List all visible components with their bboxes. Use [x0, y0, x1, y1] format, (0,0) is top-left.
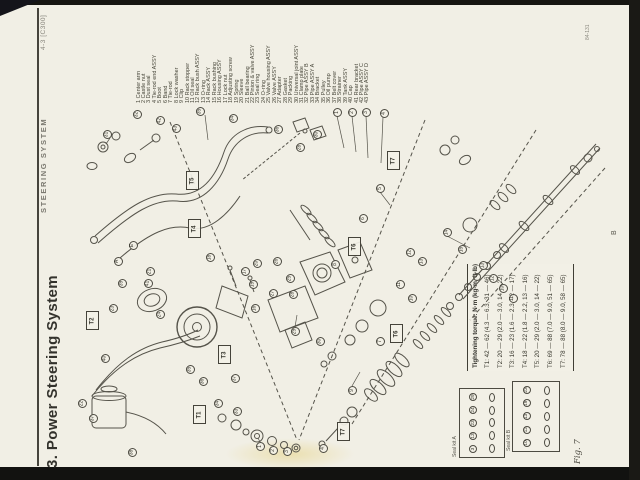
number-callout: 25 — [286, 274, 295, 283]
number-callout: 9 — [348, 386, 357, 395]
number-callout: 13 — [479, 261, 488, 270]
number-callout: 34 — [214, 399, 223, 408]
number-callout: 8 — [331, 260, 340, 269]
number-callout: 19 — [249, 280, 258, 289]
number-callout: 18 — [206, 253, 215, 262]
seal-kit-item-number: 10 — [523, 439, 531, 447]
number-callout: 14 — [443, 228, 452, 237]
seal-icon — [544, 425, 550, 434]
number-callout: 13 — [418, 257, 427, 266]
number-callout: 36 — [199, 377, 208, 386]
seal-icon — [489, 419, 495, 428]
number-callout: 37 — [231, 374, 240, 383]
seal-kit-row — [544, 386, 550, 447]
number-callout: 36 — [274, 125, 283, 134]
seal-kit-item-number: 23 — [469, 419, 477, 427]
number-callout: 27 — [269, 289, 278, 298]
number-callout: 34 — [229, 114, 238, 123]
number-callout: 41 — [144, 279, 153, 288]
number-callout: 2 — [348, 108, 357, 117]
seal-kit-row — [489, 393, 495, 453]
number-callout: 28 — [296, 143, 305, 152]
number-callout: 28 — [289, 290, 298, 299]
number-callout: 16 — [251, 304, 260, 313]
seal-icon — [544, 412, 550, 421]
number-callout: 30 — [313, 130, 322, 139]
seal-icon — [489, 406, 495, 415]
number-callout: 37 — [89, 414, 98, 423]
number-callout: 29 — [291, 327, 300, 336]
number-callout: 3 — [362, 108, 371, 117]
torque-ref-box: T7 — [387, 151, 400, 170]
torque-ref-box: T7 — [337, 422, 350, 441]
seal-kit-item-number: 23 — [523, 386, 531, 394]
number-callout: 10 — [499, 284, 508, 293]
number-callout: 6 — [359, 214, 368, 223]
number-callout: 7 — [376, 337, 385, 346]
scanned-manual-page: { "page": { "section_code": "4-3 [C300]"… — [0, 0, 640, 480]
number-callout: 33 — [233, 407, 242, 416]
number-callout: 4 — [380, 109, 389, 118]
number-callout: 22 — [78, 399, 87, 408]
number-callout: 2 — [269, 446, 278, 455]
seal-icon — [544, 399, 550, 408]
number-callout: 30 — [316, 337, 325, 346]
seal-kit-item-number: 13 — [469, 432, 477, 440]
torque-ref-box: T6 — [390, 324, 403, 343]
number-callout: 40 — [101, 354, 110, 363]
number-callout: 3 — [283, 447, 292, 456]
torque-ref-box: T3 — [218, 345, 231, 364]
number-callout: 26 — [273, 257, 282, 266]
number-callout: 11 — [509, 294, 518, 303]
seal-kit-a-box: 313232429 — [459, 388, 505, 458]
number-callout: 10 — [408, 294, 417, 303]
number-callout: 20 — [253, 259, 262, 268]
seal-icon — [544, 438, 550, 447]
seal-kit-item-number: 3 — [469, 445, 477, 453]
seal-icon — [489, 444, 495, 453]
torque-ref-box: T2 — [86, 311, 99, 330]
seal-kit-item-number: 12 — [523, 426, 531, 434]
number-callout: 1 — [256, 442, 265, 451]
number-callout: 35 — [196, 107, 205, 116]
number-callout: 21 — [146, 267, 155, 276]
number-callout: 24 — [156, 310, 165, 319]
letter-callout: A — [114, 257, 123, 266]
number-callout: 12 — [489, 274, 498, 283]
number-callout: 32 — [133, 110, 142, 119]
letter-callout: E — [129, 241, 138, 250]
seal-icon — [544, 386, 550, 395]
seal-kit-row: 313232429 — [469, 393, 477, 453]
seal-kit-item-number: 24 — [469, 406, 477, 414]
seal-kit-b-box: 1012131923 — [512, 381, 560, 452]
torque-ref-box: T6 — [348, 237, 361, 256]
torque-ref-box: T5 — [186, 171, 199, 190]
number-callout: 35 — [186, 365, 195, 374]
number-callout: 11 — [396, 280, 405, 289]
number-callout: 43 — [172, 124, 181, 133]
number-callout: 31 — [103, 130, 112, 139]
number-callout: 42 — [156, 116, 165, 125]
number-callout: 5 — [376, 184, 385, 193]
number-callout: 38 — [128, 448, 137, 457]
number-callout: 12 — [406, 248, 415, 257]
seal-kit-item-number: 19 — [523, 399, 531, 407]
torque-ref-box: T1 — [193, 405, 206, 424]
torque-ref-box: T4 — [188, 219, 201, 238]
seal-icon — [489, 393, 495, 402]
seal-kit-item-number: 13 — [523, 413, 531, 421]
seal-kit-row: 1012131923 — [523, 386, 531, 447]
number-callout: 17 — [241, 267, 250, 276]
number-callout: 4 — [319, 444, 328, 453]
number-callout: 1 — [333, 108, 342, 117]
number-callout: 39 — [118, 279, 127, 288]
number-callout: 23 — [109, 304, 118, 313]
number-callout: 15 — [458, 245, 467, 254]
seal-kit-item-number: 29 — [469, 393, 477, 401]
seal-icon — [489, 431, 495, 440]
